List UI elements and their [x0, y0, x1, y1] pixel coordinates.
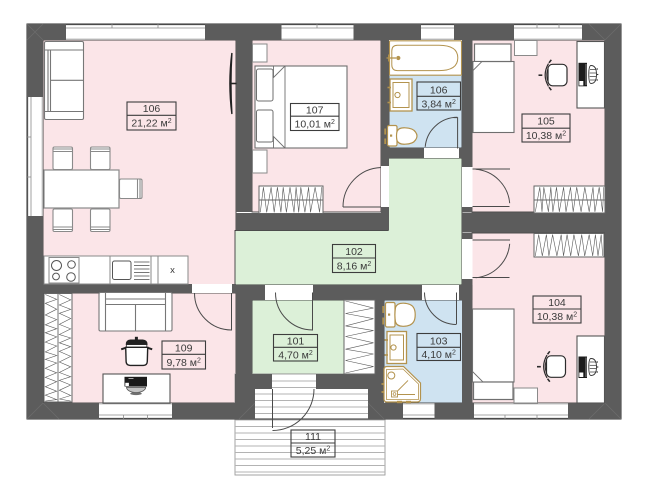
svg-text:109: 109	[175, 342, 193, 354]
svg-text:106: 106	[430, 85, 448, 97]
svg-text:4,70 м2: 4,70 м2	[278, 349, 313, 361]
svg-text:21,22 м2: 21,22 м2	[131, 118, 171, 130]
svg-text:106: 106	[143, 103, 161, 115]
svg-text:x: x	[170, 265, 175, 276]
svg-text:5,25 м2: 5,25 м2	[296, 445, 331, 457]
svg-text:3,84 м2: 3,84 м2	[421, 98, 456, 110]
svg-text:10,38 м2: 10,38 м2	[526, 130, 566, 142]
svg-text:111: 111	[305, 431, 321, 443]
svg-text:9,78 м2: 9,78 м2	[166, 357, 201, 369]
svg-text:107: 107	[306, 104, 324, 116]
svg-text:101: 101	[287, 336, 305, 348]
svg-text:8,16 м2: 8,16 м2	[337, 260, 372, 272]
svg-text:10,01 м2: 10,01 м2	[295, 119, 335, 131]
svg-text:103: 103	[430, 336, 448, 348]
svg-text:104: 104	[548, 297, 566, 309]
svg-text:105: 105	[537, 115, 555, 127]
svg-text:10,38 м2: 10,38 м2	[537, 311, 577, 323]
svg-text:102: 102	[345, 246, 363, 258]
svg-text:4,10 м2: 4,10 м2	[421, 349, 456, 361]
